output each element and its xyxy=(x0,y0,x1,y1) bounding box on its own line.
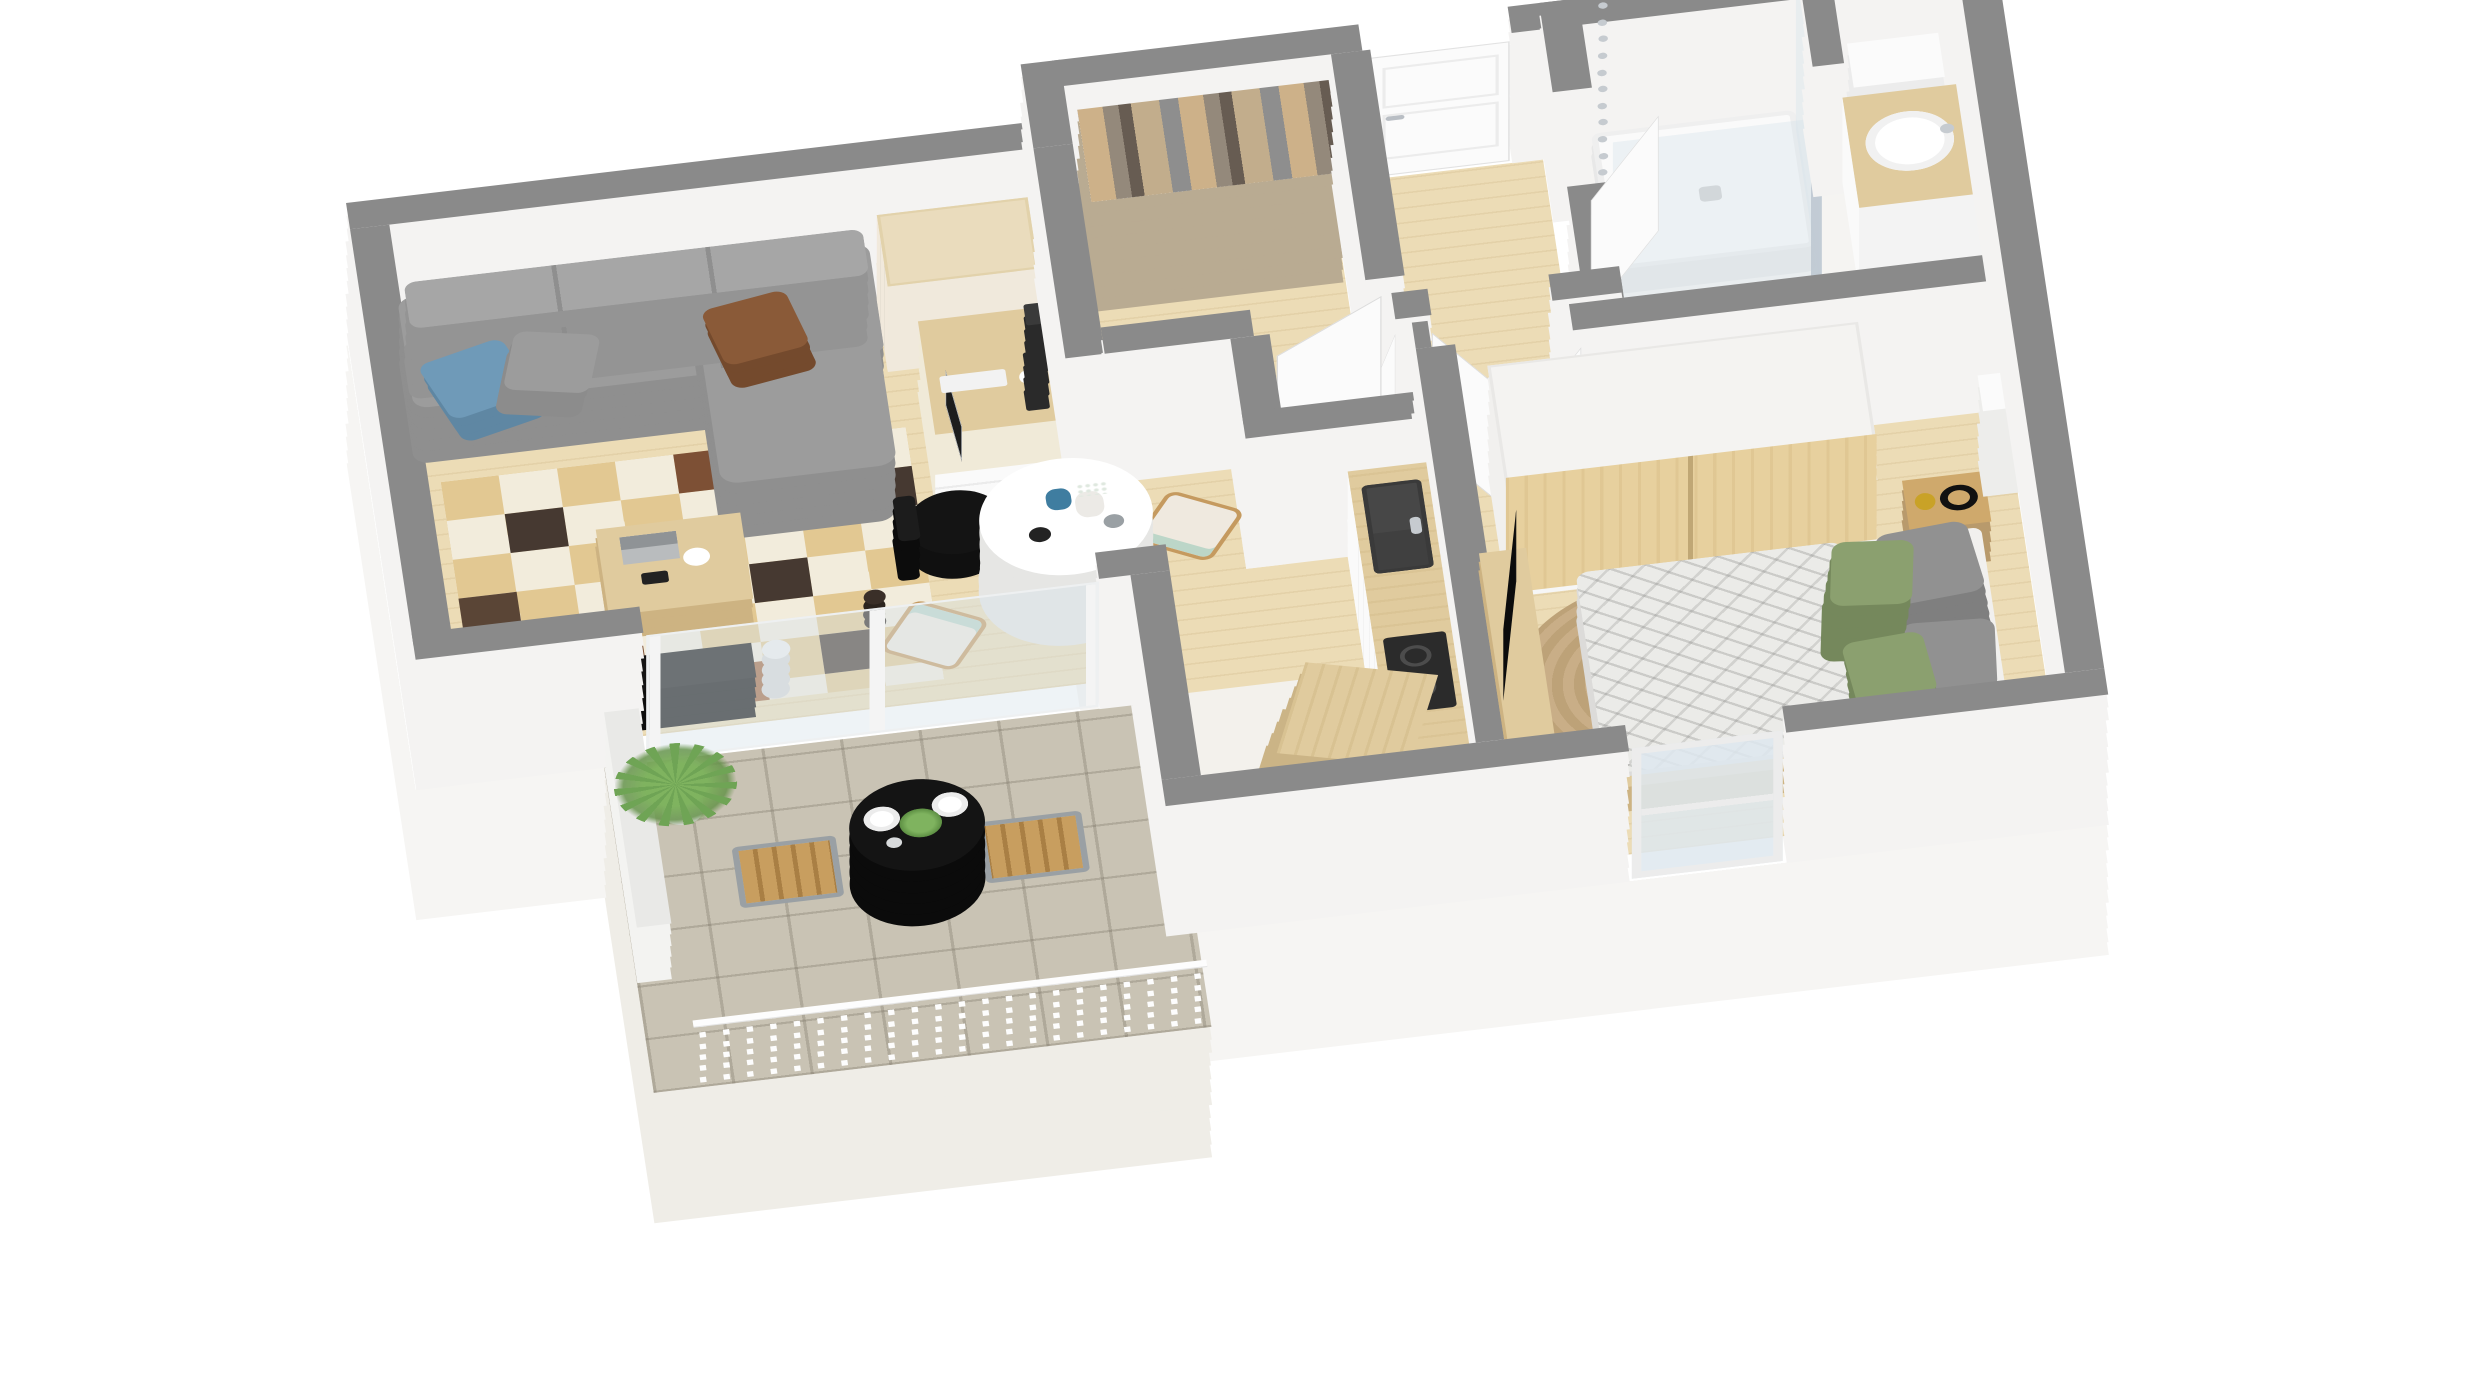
wall-north-mid xyxy=(1052,24,1362,87)
white-vase xyxy=(682,546,711,567)
kitchen-sink xyxy=(1361,479,1434,574)
vanity-counter xyxy=(1842,83,1984,208)
white-lamp-box xyxy=(1978,371,2024,412)
outdoor-chair-east xyxy=(977,810,1090,883)
round-basin xyxy=(1861,106,1958,175)
gold-vase xyxy=(1914,492,1937,511)
teapot xyxy=(1012,503,1046,526)
coffee-table xyxy=(596,513,754,616)
kitchen-faucet xyxy=(1409,516,1423,534)
cushion-gray xyxy=(503,331,601,394)
cistern-box xyxy=(1847,33,1945,88)
coffee-machine xyxy=(1023,302,1050,326)
laptop xyxy=(619,531,680,565)
pillow-green-top xyxy=(1830,540,1914,607)
bath-mat xyxy=(1853,291,1972,365)
door-panel xyxy=(1382,54,1498,108)
blue-vase xyxy=(1044,487,1072,511)
rug-square xyxy=(505,507,569,553)
outdoor-chair-west xyxy=(731,835,844,908)
rug-square xyxy=(749,557,813,603)
plate-left xyxy=(862,805,902,833)
glass-cup xyxy=(886,836,903,848)
burner xyxy=(1398,643,1433,668)
magazines xyxy=(1514,772,1560,808)
wall-hall-south-b xyxy=(1391,289,1431,320)
bedroom-window xyxy=(1632,731,1783,879)
flowers xyxy=(1076,481,1109,497)
camera xyxy=(641,570,669,585)
entrance-door xyxy=(1365,41,1510,178)
headphones xyxy=(1938,483,1980,513)
door-panel xyxy=(1382,101,1498,160)
floor-plan-render-canvas: { "scene": { "type": "3d-isometric-floor… xyxy=(0,0,2480,1395)
gray-mug xyxy=(1103,513,1126,529)
black-mug xyxy=(1028,526,1052,543)
